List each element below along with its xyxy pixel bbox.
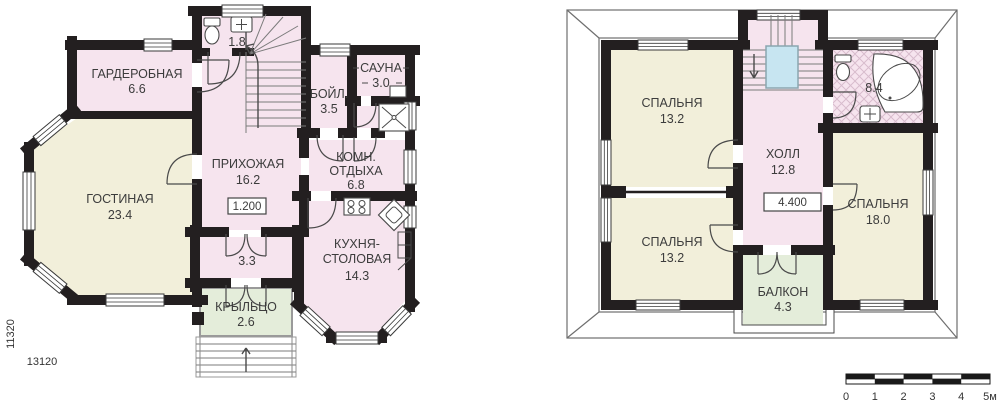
sauna-heater-icon <box>390 86 406 97</box>
komnata-otdyha-label-2: ОТДЫХА <box>329 164 383 178</box>
stair-void <box>766 46 798 88</box>
scale-tick-0: 0 <box>843 391 849 403</box>
garderobnaya-area: 6.6 <box>128 82 145 96</box>
sauna-label: САУНА <box>360 61 403 75</box>
kuhnya-label-2: СТОЛОВАЯ <box>323 252 391 266</box>
prihozhaya-label: ПРИХОЖАЯ <box>212 157 285 171</box>
scale-tick-5: 5м <box>983 391 997 403</box>
porch-steps <box>196 337 296 377</box>
scale-tick-1: 1 <box>872 391 878 403</box>
floor-plan-sheet: ГАРДЕРОБНАЯ 6.6 ГОСТИНАЯ 23.4 ПРИХОЖАЯ 1… <box>0 0 1000 416</box>
balkon-area: 4.3 <box>774 300 791 314</box>
scale-tick-3: 3 <box>929 391 935 403</box>
boylernaya-label: БОЙЛ. <box>310 86 348 101</box>
holl-area: 12.8 <box>771 163 795 177</box>
kuhnya-label-1: КУХНЯ- <box>334 237 380 251</box>
balkon-label: БАЛКОН <box>758 285 809 299</box>
scale-tick-2: 2 <box>901 391 907 403</box>
komnata-otdyha-area: 6.8 <box>347 178 364 192</box>
gostinaya-area: 23.4 <box>108 208 132 222</box>
room-gostinaya <box>30 118 192 296</box>
wc-area: 1.8 <box>228 35 245 49</box>
scale-bar: 0 1 2 3 4 5м <box>843 374 997 403</box>
boylernaya-area: 3.5 <box>320 102 337 116</box>
spalnya-bottom-left-area: 13.2 <box>660 251 684 265</box>
shower-icon <box>379 104 409 131</box>
sauna-area: 3.0 <box>372 76 389 90</box>
dimension-labels: 13120 11320 <box>5 319 57 368</box>
kuhnya-area: 14.3 <box>345 269 369 283</box>
komnata-otdyha-label-1: КОМН. <box>336 150 376 164</box>
elevation-mark-floor1: 1.200 <box>228 198 266 214</box>
dim-horizontal: 13120 <box>27 356 58 368</box>
dim-vertical: 11320 <box>5 319 17 349</box>
spalnya-top-left-label: СПАЛЬНЯ <box>641 96 702 110</box>
toilet2-icon <box>835 55 851 81</box>
floor-plan-drawing: ГАРДЕРОБНАЯ 6.6 ГОСТИНАЯ 23.4 ПРИХОЖАЯ 1… <box>0 0 1000 416</box>
sink-icon <box>231 17 252 32</box>
garderobnaya-label: ГАРДЕРОБНАЯ <box>92 67 183 81</box>
elevation-value-floor1: 1.200 <box>233 201 262 213</box>
spalnya-right-label: СПАЛЬНЯ <box>847 197 908 211</box>
floor2-plan: СПАЛЬНЯ 13.2 СПАЛЬНЯ 13.2 СПАЛЬНЯ 18.0 Х… <box>567 10 957 338</box>
gostinaya-label: ГОСТИНАЯ <box>86 192 153 206</box>
elevation-mark-floor2: 4.400 <box>764 193 821 211</box>
prihozhaya-area: 16.2 <box>236 173 260 187</box>
krylco-area: 2.6 <box>237 315 254 329</box>
tambur-area: 3.3 <box>238 254 255 268</box>
sink2-icon <box>860 106 880 122</box>
spalnya-bottom-left-label: СПАЛЬНЯ <box>641 235 702 249</box>
spalnya-top-left-area: 13.2 <box>660 112 684 126</box>
scale-tick-4: 4 <box>958 391 964 403</box>
stove-icon <box>344 198 370 215</box>
spalnya-right-area: 18.0 <box>866 213 890 227</box>
toilet-icon <box>204 18 220 44</box>
floor1-plan: ГАРДЕРОБНАЯ 6.6 ГОСТИНАЯ 23.4 ПРИХОЖАЯ 1… <box>5 5 416 377</box>
sanuzel-area: 8.4 <box>865 81 882 95</box>
elevation-value-floor2: 4.400 <box>778 197 807 209</box>
room-spalnya-bottom-left <box>611 198 733 300</box>
krylco-label: КРЫЛЬЦО <box>215 300 277 314</box>
holl-label: ХОЛЛ <box>766 147 800 161</box>
